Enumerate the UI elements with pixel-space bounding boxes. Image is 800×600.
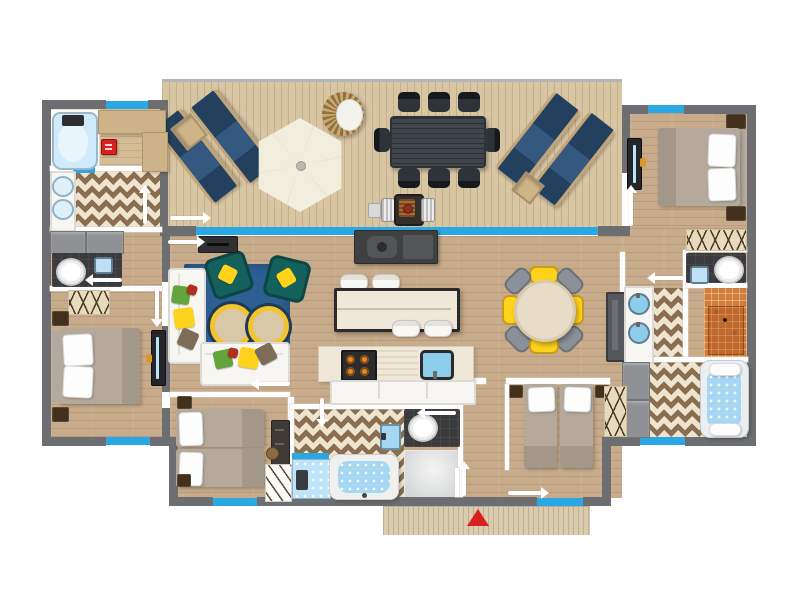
nightstand (726, 114, 746, 129)
door-arrow (654, 276, 684, 280)
washbasin-small (380, 424, 401, 450)
pillow (62, 333, 94, 367)
cabinet-divider (426, 382, 428, 399)
wall-living-bedroom1-c (162, 408, 170, 437)
shower-cabin (292, 453, 329, 497)
door-arrow (92, 278, 122, 282)
burner (346, 367, 355, 376)
island-table-line (337, 308, 451, 310)
cushion-yellow (173, 307, 196, 330)
washbasin (52, 199, 74, 220)
pillow (707, 134, 736, 168)
door-arrow (424, 411, 456, 415)
corridor-right-chevron (650, 288, 683, 360)
headboard (739, 130, 746, 204)
kitchen-sink (420, 350, 454, 380)
jacuzzi-drain (362, 493, 367, 498)
wall-bottom-a (169, 497, 213, 506)
hanging-egg-chair (322, 92, 364, 136)
bathtub-basin (58, 124, 88, 162)
shower-fixture (296, 470, 308, 490)
door-arrow (168, 240, 198, 244)
tall-cabinet-line (612, 300, 618, 350)
bbq-meat (403, 204, 413, 214)
tv-screen (156, 337, 159, 379)
faucet (636, 322, 640, 327)
cushion-yellow (275, 267, 297, 289)
tv-screen (633, 145, 636, 183)
wall-left (42, 100, 51, 446)
single-bed (176, 409, 264, 447)
door-arrow (155, 288, 159, 320)
single-bed (560, 384, 593, 468)
door-arrow (320, 398, 324, 420)
jacuzzi-water (707, 373, 741, 425)
storage-cabinet (86, 231, 124, 254)
nightstand (177, 396, 192, 409)
towel-ladder (265, 464, 292, 502)
dining-chair (458, 168, 480, 188)
wardrobe-hangers (686, 229, 747, 251)
jacuzzi-water (338, 461, 390, 493)
wall-bottomleft-a (42, 437, 106, 446)
red-kit-box-detail (105, 144, 112, 146)
round-dining-table (514, 280, 576, 342)
terrace-edge (162, 79, 622, 82)
burner (360, 355, 369, 364)
dining-chair (428, 168, 450, 188)
wall-bottomright-b (685, 437, 756, 446)
red-kit-box (101, 139, 117, 155)
wall-topright-b (684, 105, 756, 114)
nightstand (508, 385, 523, 398)
dining-chair (428, 92, 450, 112)
burner (346, 355, 355, 364)
round-stool (266, 447, 279, 460)
floor-plan (0, 0, 800, 600)
door-arrow (462, 468, 466, 496)
dining-chair (458, 92, 480, 112)
jacuzzi-pillow (709, 363, 741, 376)
wall-topleft-a (42, 100, 106, 109)
bbq-gas-cylinder (381, 198, 395, 222)
console-slot (207, 243, 229, 246)
mini-washbasin (94, 257, 113, 274)
bbq-grill (394, 194, 424, 226)
toilet (714, 256, 744, 284)
walkin-shower-floor (404, 450, 462, 499)
cushion-yellow (217, 264, 239, 286)
jacuzzi-bathtub (700, 360, 749, 438)
nightstand (52, 407, 69, 422)
window-top-left (106, 101, 148, 109)
media-fireplace-unit (354, 230, 438, 264)
door-leaf (505, 384, 509, 470)
door-arrow (629, 192, 633, 226)
single-bed (524, 384, 557, 468)
door-arrow (143, 192, 147, 224)
mini-washbasin (690, 266, 709, 284)
burner (360, 367, 369, 376)
unit-shelf (403, 235, 433, 259)
sauna-bench-side (142, 132, 168, 172)
red-kit-box-detail (105, 148, 112, 150)
parasol-pole (296, 161, 306, 171)
bathtub-panel (62, 115, 84, 126)
stool (424, 320, 452, 337)
kitchen-base-cabinets (330, 380, 476, 405)
jacuzzi-pillow (709, 423, 741, 436)
dining-chair (484, 128, 500, 152)
wardrobe-hangers (604, 386, 627, 437)
tv-accent (146, 354, 152, 363)
vanity-sink (628, 293, 650, 315)
hob (341, 350, 377, 381)
window-bottom-left (106, 437, 150, 445)
nightstand (726, 206, 746, 221)
window-bottom-center-left (213, 498, 257, 506)
shower-tray (708, 306, 744, 355)
double-bed (52, 328, 140, 404)
round-coffee-table (248, 306, 289, 347)
nightstand (52, 311, 69, 326)
wall-tv (151, 330, 166, 386)
blanket-fold (242, 449, 264, 487)
door-leaf (455, 468, 459, 497)
wall-bottom-c (500, 497, 537, 506)
wardrobe-hangers (68, 290, 110, 315)
door-arrow (258, 382, 290, 386)
jacuzzi-bathtub-horizontal (329, 454, 399, 500)
faucet (433, 371, 437, 379)
blanket-fold (242, 409, 264, 447)
dining-chair (398, 92, 420, 112)
glass-wall-left (162, 226, 196, 236)
bbq-gas-cylinder (421, 198, 435, 222)
faucet (636, 293, 640, 298)
entrance-arrow (467, 509, 489, 526)
blanket-fold (560, 446, 593, 468)
counter-drawers (376, 350, 418, 376)
door-arrow (170, 216, 204, 220)
shower-drain (723, 318, 727, 322)
nightstand (177, 474, 191, 487)
sauna-bench-top (98, 110, 166, 134)
wall-step-right (602, 437, 611, 506)
dining-chair (398, 168, 420, 188)
dresser-line (275, 429, 284, 431)
outdoor-dining-table (390, 116, 486, 168)
bbq-plate (368, 203, 381, 218)
dining-chair (374, 128, 390, 152)
egg-chair-cushion (336, 99, 363, 131)
fireplace-core (377, 242, 387, 252)
glass-wall-right (598, 226, 624, 236)
faucet (381, 433, 386, 440)
storage-cabinet (50, 231, 86, 254)
tv-accent (640, 158, 646, 167)
cabinet-divider (378, 382, 380, 399)
stool (392, 320, 420, 337)
blanket-fold (658, 128, 676, 206)
window-bottom-center-right (537, 498, 583, 506)
pillow (564, 387, 592, 413)
pillow (178, 412, 203, 447)
pillow (62, 365, 94, 399)
blanket-fold (524, 446, 557, 468)
mosaic-shower (704, 288, 747, 357)
window-bottom-right (640, 437, 685, 445)
double-bed (658, 128, 746, 206)
window-top-right (648, 105, 684, 113)
dresser-line (275, 443, 284, 445)
headboard (52, 330, 59, 402)
pillow (528, 387, 556, 413)
pillow (707, 168, 736, 202)
vanity-sink (628, 322, 650, 344)
door-arrow (508, 491, 542, 495)
washbasin (52, 176, 74, 197)
partition-bedroom4-top-b (506, 378, 610, 384)
bathtub (52, 112, 98, 170)
toilet (56, 258, 86, 286)
dresser (271, 420, 290, 468)
wall-bottomright-a (602, 437, 640, 446)
blanket-fold (122, 328, 140, 404)
